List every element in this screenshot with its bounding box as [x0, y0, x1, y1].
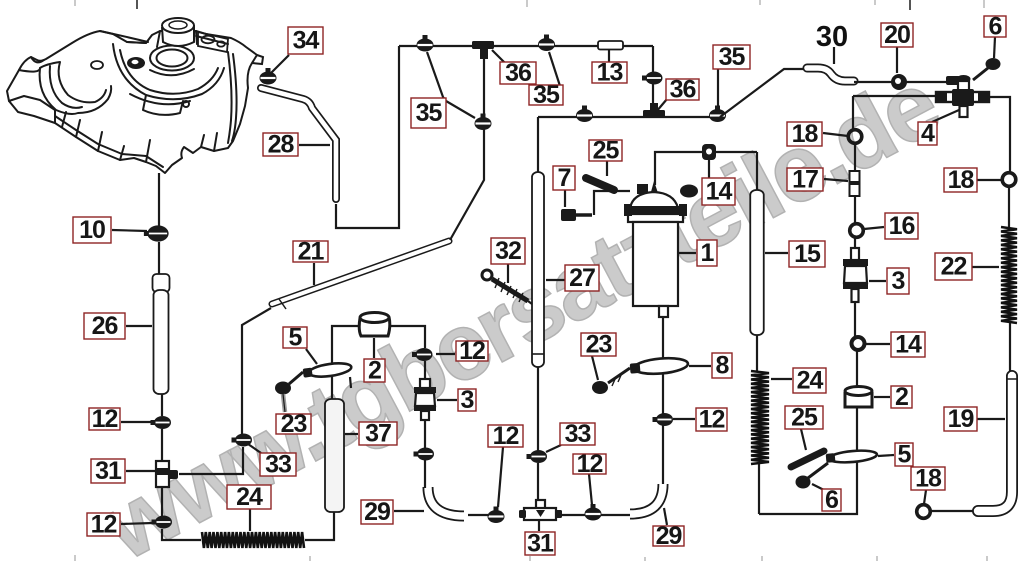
svg-text:12: 12 [577, 450, 603, 478]
svg-text:28: 28 [268, 131, 295, 159]
svg-text:23: 23 [281, 410, 307, 438]
svg-text:29: 29 [364, 498, 390, 526]
svg-text:26: 26 [92, 312, 118, 340]
svg-text:18: 18 [915, 465, 942, 493]
svg-text:12: 12 [92, 405, 118, 433]
svg-text:36: 36 [505, 59, 531, 87]
svg-text:31: 31 [527, 530, 554, 558]
svg-text:33: 33 [565, 420, 591, 448]
svg-text:1: 1 [701, 239, 715, 267]
svg-text:29: 29 [656, 522, 682, 550]
svg-text:30: 30 [816, 21, 848, 53]
svg-text:12: 12 [459, 337, 485, 365]
svg-text:12: 12 [493, 422, 519, 450]
svg-text:22: 22 [941, 253, 967, 281]
svg-text:2: 2 [895, 383, 908, 411]
svg-text:20: 20 [884, 21, 910, 49]
svg-text:36: 36 [670, 76, 696, 104]
svg-text:12: 12 [699, 406, 725, 434]
svg-text:7: 7 [558, 164, 571, 192]
svg-text:17: 17 [792, 166, 818, 194]
svg-text:12: 12 [91, 511, 117, 539]
svg-text:24: 24 [797, 367, 824, 395]
svg-text:33: 33 [265, 451, 291, 479]
svg-text:13: 13 [597, 59, 623, 87]
svg-text:18: 18 [792, 120, 819, 148]
svg-text:2: 2 [368, 357, 381, 385]
svg-text:34: 34 [293, 27, 320, 55]
svg-text:4: 4 [921, 120, 935, 148]
svg-text:35: 35 [533, 81, 560, 109]
svg-text:23: 23 [586, 331, 612, 359]
svg-text:14: 14 [895, 331, 922, 359]
svg-text:32: 32 [495, 237, 521, 265]
svg-text:8: 8 [716, 352, 730, 380]
svg-text:6: 6 [989, 13, 1002, 41]
svg-text:25: 25 [593, 137, 620, 165]
svg-text:18: 18 [948, 166, 975, 194]
svg-text:5: 5 [898, 441, 912, 469]
svg-text:19: 19 [948, 405, 974, 433]
svg-text:5: 5 [289, 324, 303, 352]
svg-text:37: 37 [365, 420, 391, 448]
svg-text:24: 24 [236, 483, 263, 511]
svg-text:3: 3 [461, 386, 474, 414]
svg-text:3: 3 [892, 267, 905, 295]
svg-text:31: 31 [95, 457, 122, 485]
svg-text:35: 35 [719, 43, 746, 71]
svg-text:10: 10 [79, 216, 105, 244]
svg-text:16: 16 [889, 212, 915, 240]
svg-text:6: 6 [825, 486, 838, 514]
svg-text:21: 21 [298, 238, 325, 266]
svg-text:15: 15 [794, 240, 821, 268]
svg-text:35: 35 [416, 99, 443, 127]
svg-text:25: 25 [791, 404, 818, 432]
svg-text:27: 27 [569, 264, 595, 292]
svg-text:14: 14 [706, 178, 733, 206]
